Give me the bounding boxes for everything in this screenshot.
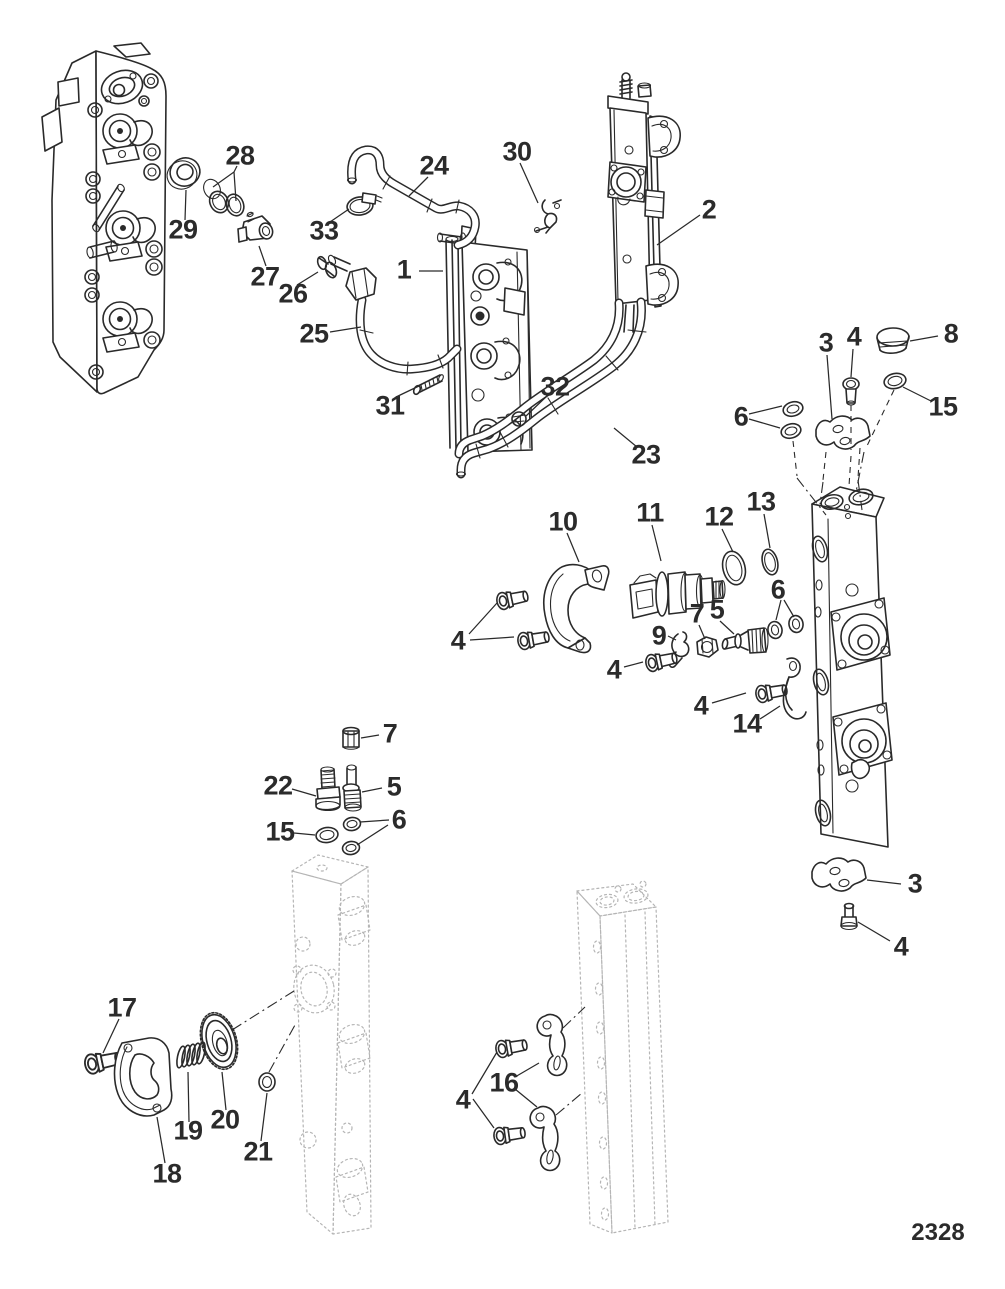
injector-bracket-10 (544, 565, 609, 653)
assembly-dash-lines (232, 390, 894, 1115)
screw-4-bracket-b (517, 628, 551, 650)
screw-4-mid (644, 649, 678, 672)
o-ring-21 (259, 1073, 275, 1091)
callout-20: 20 (210, 1107, 239, 1134)
o-ring-15-manifold (315, 826, 339, 844)
callout-19: 19 (173, 1118, 202, 1145)
callout-12: 12 (704, 504, 733, 531)
callout-32: 32 (540, 374, 569, 401)
callout-8: 8 (944, 321, 959, 348)
elbow-fitting-27 (238, 212, 274, 242)
parts-diagram-page: 28 29 33 27 26 24 30 2 1 25 31 32 23 3 4… (0, 0, 1005, 1289)
callout-7-mid: 7 (690, 601, 705, 628)
figure-number: 2328 (911, 1219, 964, 1247)
fuel-rail-2 (608, 73, 680, 332)
o-ring-set-28 (201, 177, 247, 219)
callout-5-mid: 5 (710, 597, 725, 624)
callout-4-bottom: 4 (894, 934, 909, 961)
callout-29: 29 (168, 217, 197, 244)
o-rings-6-top (780, 400, 805, 441)
nut-7-mid (697, 637, 718, 657)
callout-3-bottom: 3 (908, 871, 923, 898)
callout-5-manifold: 5 (387, 774, 402, 801)
seal-washer-29 (163, 154, 204, 194)
callout-14: 14 (732, 711, 761, 738)
callout-22: 22 (263, 773, 292, 800)
fuel-pump-block (810, 487, 892, 847)
callout-4-top: 4 (847, 324, 862, 351)
fuel-hose-25 (327, 254, 457, 375)
callout-13: 13 (746, 489, 775, 516)
callout-23: 23 (631, 442, 660, 469)
bracket-16-lower (530, 1107, 559, 1171)
callout-10: 10 (548, 509, 577, 536)
cap-plug-8 (877, 328, 909, 353)
callout-15-top: 15 (928, 394, 957, 421)
callout-4-block-side: 4 (694, 693, 709, 720)
callout-17: 17 (107, 995, 136, 1022)
callout-6-manifold: 6 (392, 807, 407, 834)
callout-4-mid: 4 (607, 657, 622, 684)
fitting-5-manifold (343, 765, 361, 811)
callout-1: 1 (397, 257, 412, 284)
screw-4-link-lower (493, 1124, 526, 1145)
retainer-plate-3-bottom (812, 858, 866, 891)
fitting-5-mid (722, 628, 768, 653)
nut-7-manifold (343, 728, 359, 750)
callout-3-top: 3 (819, 330, 834, 357)
screw-4-link-upper (495, 1036, 529, 1058)
ghost-manifold-block (289, 855, 371, 1234)
callout-24: 24 (419, 153, 448, 180)
retainer-plate-3-top (816, 416, 870, 449)
screw-4-top (843, 378, 859, 405)
callout-25: 25 (299, 321, 328, 348)
callout-33: 33 (309, 218, 338, 245)
bracket-16-upper (537, 1015, 566, 1076)
callout-9: 9 (652, 623, 667, 650)
callout-6-mid: 6 (771, 577, 786, 604)
callout-4-links: 4 (456, 1087, 471, 1114)
cover-18 (115, 1038, 172, 1116)
callout-2: 2 (702, 197, 717, 224)
port-adapter-block (42, 43, 166, 394)
callout-18: 18 (152, 1161, 181, 1188)
hose-clamp-33 (346, 193, 382, 217)
callout-11: 11 (636, 500, 664, 527)
callout-21: 21 (243, 1139, 272, 1166)
callout-7-manifold: 7 (383, 721, 398, 748)
fitting-22 (316, 767, 340, 811)
callout-27: 27 (250, 264, 279, 291)
o-ring-13 (760, 548, 781, 577)
o-rings-6-manifold (342, 816, 362, 855)
callout-16: 16 (489, 1070, 518, 1097)
o-rings-6-mid (767, 614, 805, 639)
callout-6-top: 6 (734, 404, 749, 431)
ghost-cylinder-block (577, 881, 668, 1233)
callout-15-manifold: 15 (265, 819, 294, 846)
diaphragm-20 (194, 1008, 244, 1073)
screw-4-bracket-a (495, 587, 529, 610)
callout-30: 30 (502, 139, 531, 166)
callout-28: 28 (225, 143, 254, 170)
callout-26: 26 (278, 281, 307, 308)
screw-4-bottom (841, 904, 857, 930)
callout-31: 31 (375, 393, 404, 420)
callout-4-bracket: 4 (451, 628, 466, 655)
screw-31 (412, 374, 444, 395)
retainer-clip-30 (535, 200, 562, 233)
